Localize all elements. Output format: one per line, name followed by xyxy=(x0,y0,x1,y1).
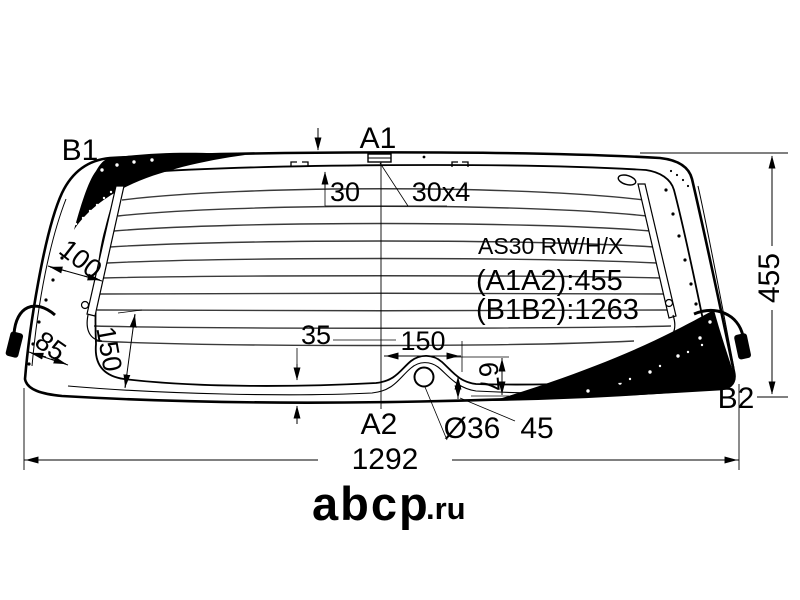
arrow-150-left-up xyxy=(133,315,135,328)
label-a1: A1 xyxy=(360,122,397,155)
label-a2: A2 xyxy=(361,408,398,441)
arrow-150-left-down xyxy=(125,374,127,387)
sensor-oval xyxy=(617,173,637,187)
glass-diagram-svg: B1 A1 A2 B2 30 30x4 100 85 150 35 150 67… xyxy=(0,0,800,600)
bus-bar-left-terminal xyxy=(82,302,89,309)
wiper-hole xyxy=(415,368,434,387)
watermark-tld: .ru xyxy=(426,491,466,526)
measure-b1b2: (B1B2):1263 xyxy=(476,294,639,326)
watermark: abcp .ru xyxy=(312,477,466,530)
watermark-logo: abcp xyxy=(312,477,430,530)
dim-label-30: 30 xyxy=(330,177,360,207)
dim-label-35: 35 xyxy=(301,320,331,350)
dim-label-150-left: 150 xyxy=(90,324,127,374)
dim-label-hole-dia: Ø36 xyxy=(444,412,501,445)
label-b1: B1 xyxy=(62,134,99,167)
bus-bar-right-terminal xyxy=(666,300,673,307)
dim-label-455: 455 xyxy=(753,253,786,303)
dim-label-67: 67 xyxy=(473,361,506,394)
connector-left xyxy=(5,331,24,358)
technical-drawing: B1 A1 A2 B2 30 30x4 100 85 150 35 150 67… xyxy=(0,0,800,600)
leader-30x4 xyxy=(380,163,408,206)
part-code: AS30 RW/H/X xyxy=(478,233,623,259)
bus-bar-right xyxy=(638,184,676,318)
measure-a1a2: (A1A2):455 xyxy=(476,265,623,297)
dim-label-150-bump: 150 xyxy=(400,326,445,356)
arrow-100-left xyxy=(50,267,66,271)
dim-label-1292: 1292 xyxy=(352,443,419,476)
connector-right xyxy=(734,333,752,360)
corner-fill-tl xyxy=(74,153,245,230)
dim-label-45: 45 xyxy=(520,412,553,445)
label-b2: B2 xyxy=(718,382,755,415)
dim-label-30x4: 30x4 xyxy=(412,177,471,207)
